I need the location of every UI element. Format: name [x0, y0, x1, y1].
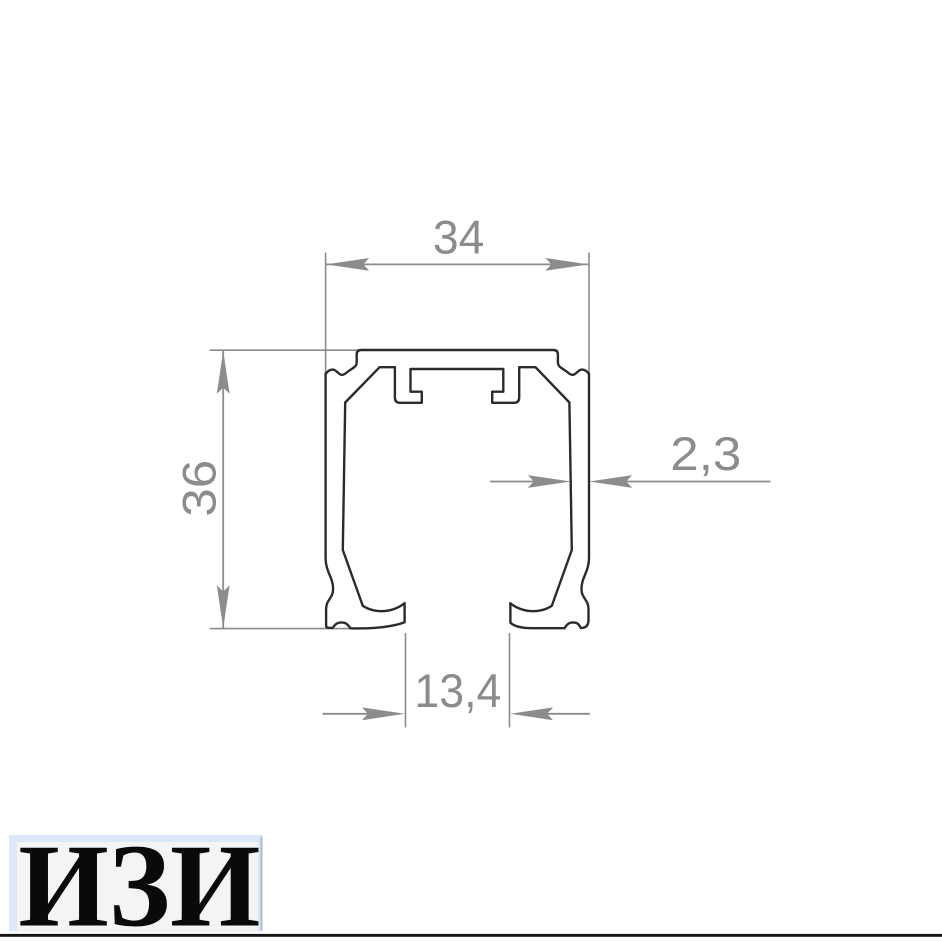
svg-text:36: 36	[174, 460, 227, 517]
svg-text:34: 34	[433, 212, 485, 265]
svg-text:13,4: 13,4	[414, 665, 501, 718]
svg-text:ИЗИ: ИЗИ	[18, 821, 260, 941]
svg-text:2,3: 2,3	[670, 428, 741, 481]
